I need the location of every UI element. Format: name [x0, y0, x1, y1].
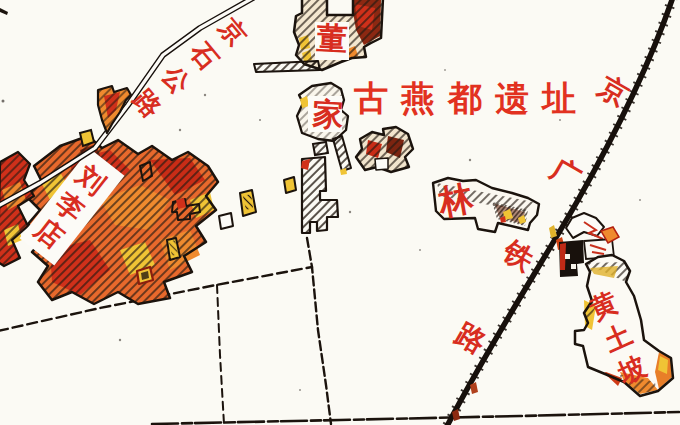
- map-title: 古燕都遗址: [354, 76, 589, 122]
- label-lin-compound: 林: [435, 179, 477, 221]
- map-canvas: 古燕都遗址 京石公路 董家 刘李店 林 京广铁路 黄土坡: [0, 0, 680, 425]
